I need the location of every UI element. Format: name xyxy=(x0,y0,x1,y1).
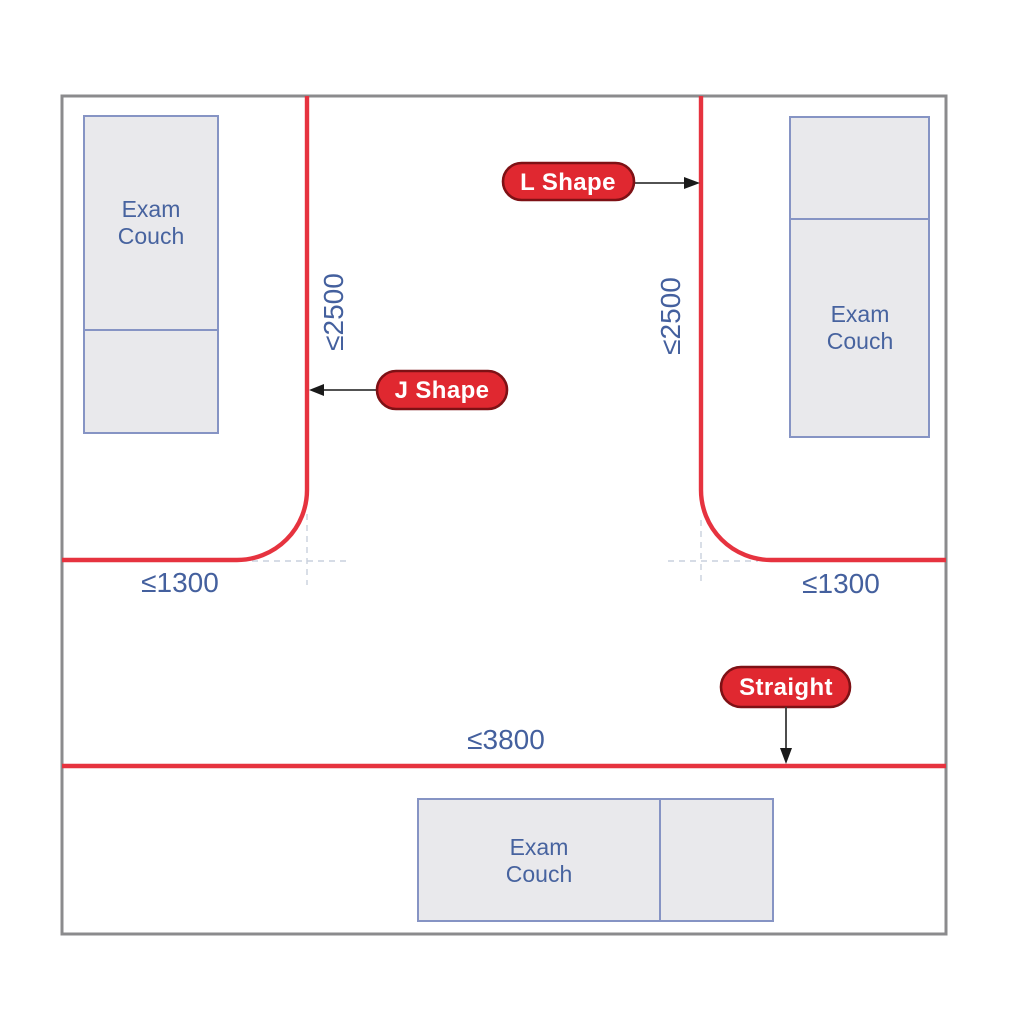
svg-text:Exam: Exam xyxy=(510,834,569,860)
svg-text:Exam: Exam xyxy=(122,196,181,222)
svg-text:≤1300: ≤1300 xyxy=(141,567,219,598)
svg-text:L Shape: L Shape xyxy=(520,169,616,196)
svg-text:Couch: Couch xyxy=(506,861,572,887)
svg-text:Exam: Exam xyxy=(831,301,890,327)
svg-text:≤2500: ≤2500 xyxy=(655,277,686,355)
svg-text:J Shape: J Shape xyxy=(395,377,490,404)
svg-text:Couch: Couch xyxy=(118,223,184,249)
svg-text:Straight: Straight xyxy=(739,674,833,701)
svg-text:Couch: Couch xyxy=(827,328,893,354)
svg-text:≤2500: ≤2500 xyxy=(318,273,349,351)
svg-text:≤1300: ≤1300 xyxy=(802,568,880,599)
svg-text:≤3800: ≤3800 xyxy=(467,724,545,755)
